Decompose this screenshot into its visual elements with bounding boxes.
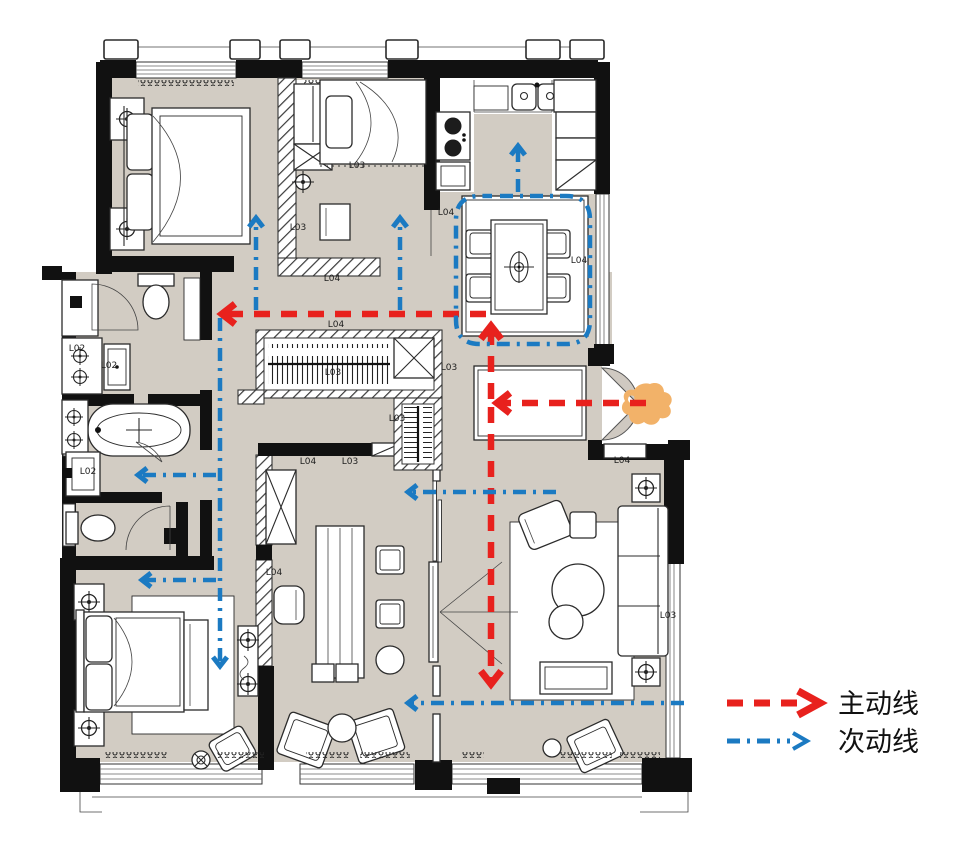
finish-label: L02 xyxy=(80,467,96,477)
side-table xyxy=(328,714,356,742)
pillow xyxy=(127,114,153,170)
round-stool xyxy=(376,646,404,674)
finish-label: L03 xyxy=(342,457,358,467)
floorplan-drawing: L03L03L04L04L04L04L03L03L03L04L03L04L04L… xyxy=(0,0,975,864)
legend-main-route-arrow-icon xyxy=(798,691,820,715)
finish-label: L04 xyxy=(438,208,455,218)
finish-label: L03 xyxy=(441,363,457,373)
legend: 主动线 次动线 xyxy=(727,689,919,757)
finish-label: L04 xyxy=(324,274,341,284)
pillow xyxy=(86,664,112,710)
coffee-table-round xyxy=(549,605,583,639)
finish-label: L04 xyxy=(328,320,345,330)
finish-label: L04 xyxy=(266,568,283,578)
floorplan-page: L03L03L04L04L04L04L03L03L03L04L03L04L04L… xyxy=(0,0,975,864)
finish-label: L04 xyxy=(571,256,588,266)
finish-label: L02 xyxy=(69,344,85,354)
desk-chair xyxy=(274,586,304,624)
finish-label: L03 xyxy=(290,223,306,233)
bed-bench xyxy=(184,620,208,710)
kitchen-sink xyxy=(512,84,536,110)
pillow xyxy=(86,616,112,662)
sofa xyxy=(618,506,668,656)
finish-label: L02 xyxy=(101,361,117,371)
finish-label: L03 xyxy=(660,611,676,621)
pillow xyxy=(326,96,352,148)
finish-label: L04 xyxy=(300,457,317,467)
pillow xyxy=(127,174,153,230)
legend-secondary-route-label: 次动线 xyxy=(838,727,919,757)
kitchen-cabinet xyxy=(554,80,596,112)
headboard xyxy=(76,610,84,712)
finish-label: L03 xyxy=(349,161,365,171)
fan-icon xyxy=(192,751,210,769)
legend-main-route-label: 主动线 xyxy=(838,689,919,719)
finish-label: L04 xyxy=(614,456,631,466)
side-table xyxy=(543,739,561,757)
finish-label: L03 xyxy=(389,414,405,424)
finish-label: L03 xyxy=(325,368,341,378)
desk-chair xyxy=(320,204,350,240)
legend-secondary-route-arrow-icon xyxy=(793,733,807,749)
pouf xyxy=(570,512,596,538)
